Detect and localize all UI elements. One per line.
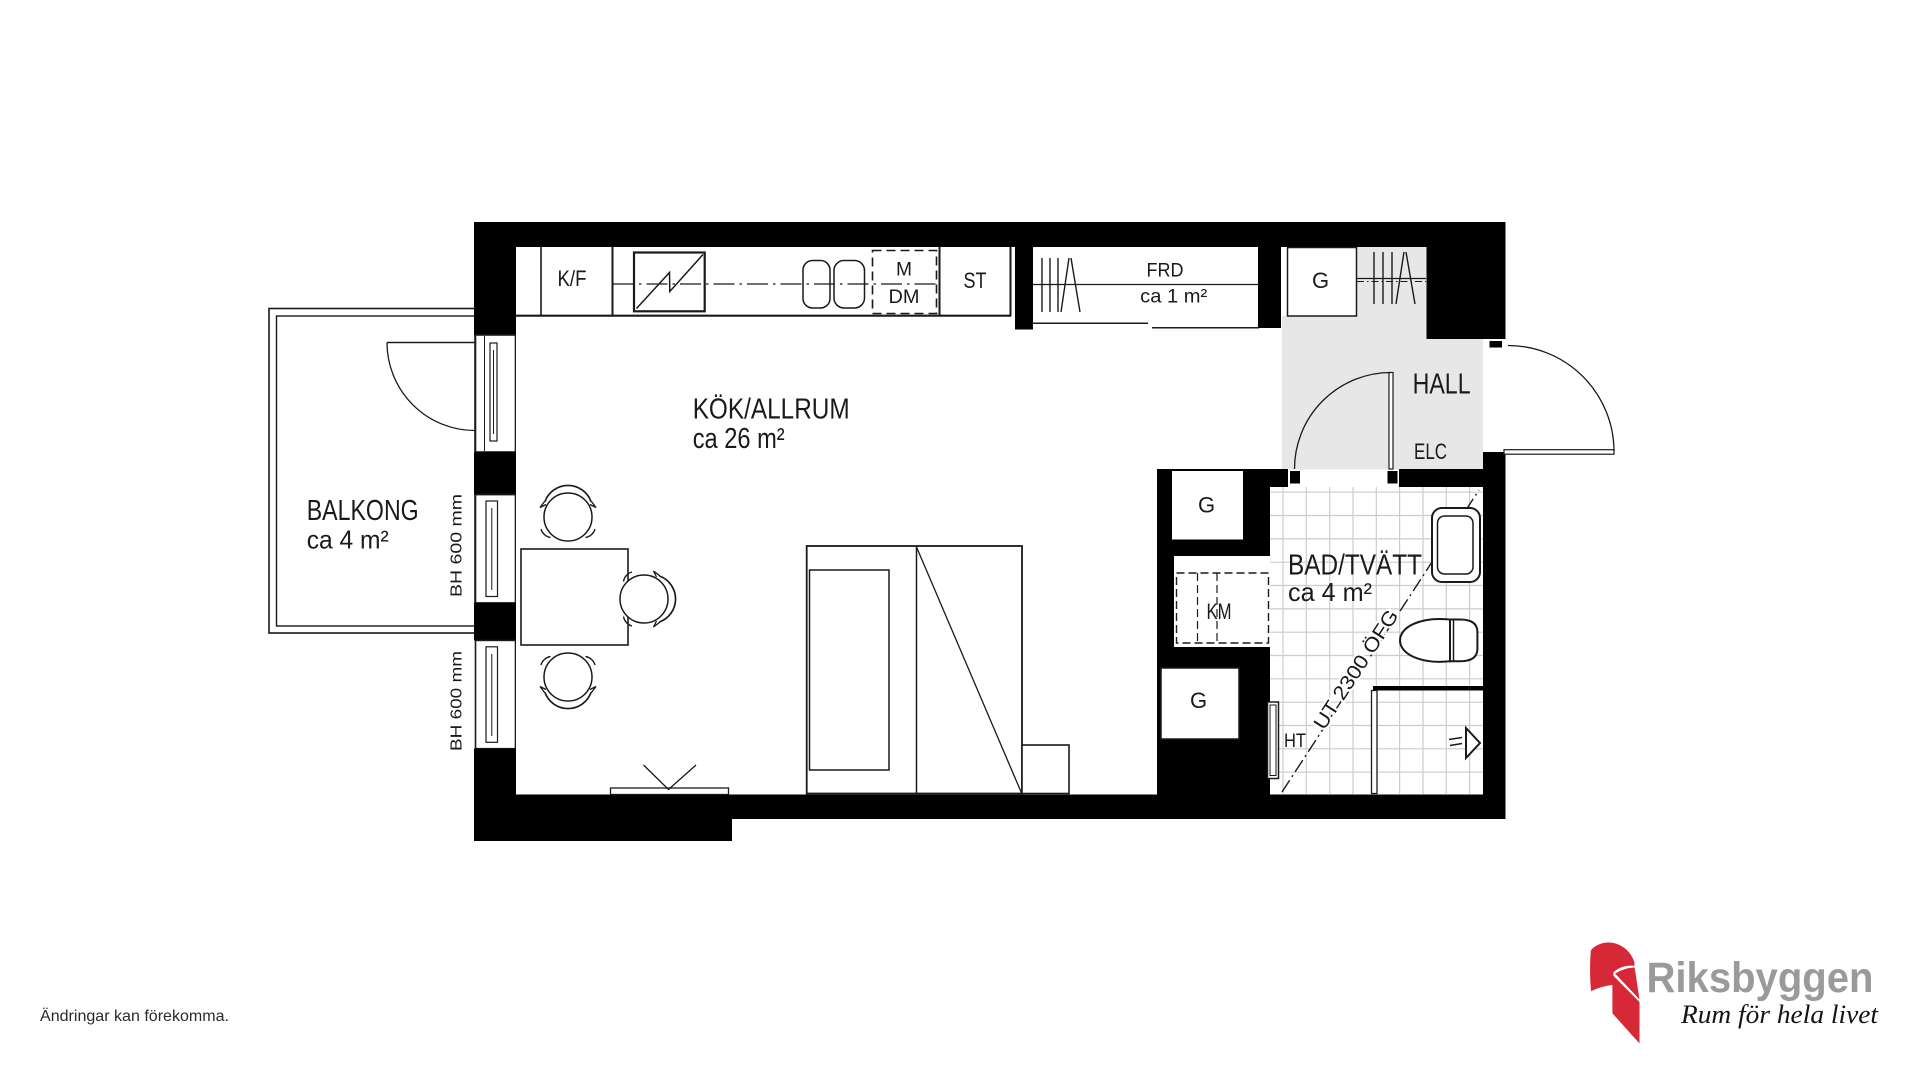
svg-text:ca 4 m²: ca 4 m² xyxy=(1288,577,1372,607)
svg-text:HT: HT xyxy=(1284,731,1306,752)
svg-text:BH 600 mm: BH 600 mm xyxy=(449,651,466,751)
svg-text:DM: DM xyxy=(889,287,920,308)
svg-text:ca 4 m²: ca 4 m² xyxy=(307,525,389,555)
svg-text:HALL: HALL xyxy=(1413,369,1471,401)
svg-text:ca 26 m²: ca 26 m² xyxy=(693,423,785,455)
svg-text:ca 1 m²: ca 1 m² xyxy=(1140,287,1207,308)
svg-text:Rum för hela livet: Rum för hela livet xyxy=(1680,1000,1879,1029)
svg-text:KÖK/ALLRUM: KÖK/ALLRUM xyxy=(693,394,850,426)
svg-text:K/F: K/F xyxy=(558,266,587,291)
svg-text:G: G xyxy=(1198,493,1215,518)
svg-text:FRD: FRD xyxy=(1147,261,1184,282)
svg-text:Riksbyggen: Riksbyggen xyxy=(1647,954,1874,1002)
svg-text:Ändringar kan förekomma.: Ändringar kan förekomma. xyxy=(40,1007,229,1025)
svg-text:G: G xyxy=(1312,268,1329,293)
svg-text:M: M xyxy=(896,260,912,281)
svg-text:BH 600 mm: BH 600 mm xyxy=(449,494,466,597)
svg-text:G: G xyxy=(1190,688,1207,713)
svg-text:BALKONG: BALKONG xyxy=(307,495,419,527)
svg-text:ST: ST xyxy=(964,268,987,293)
svg-text:KM: KM xyxy=(1207,599,1232,624)
svg-text:ELC: ELC xyxy=(1414,439,1447,464)
